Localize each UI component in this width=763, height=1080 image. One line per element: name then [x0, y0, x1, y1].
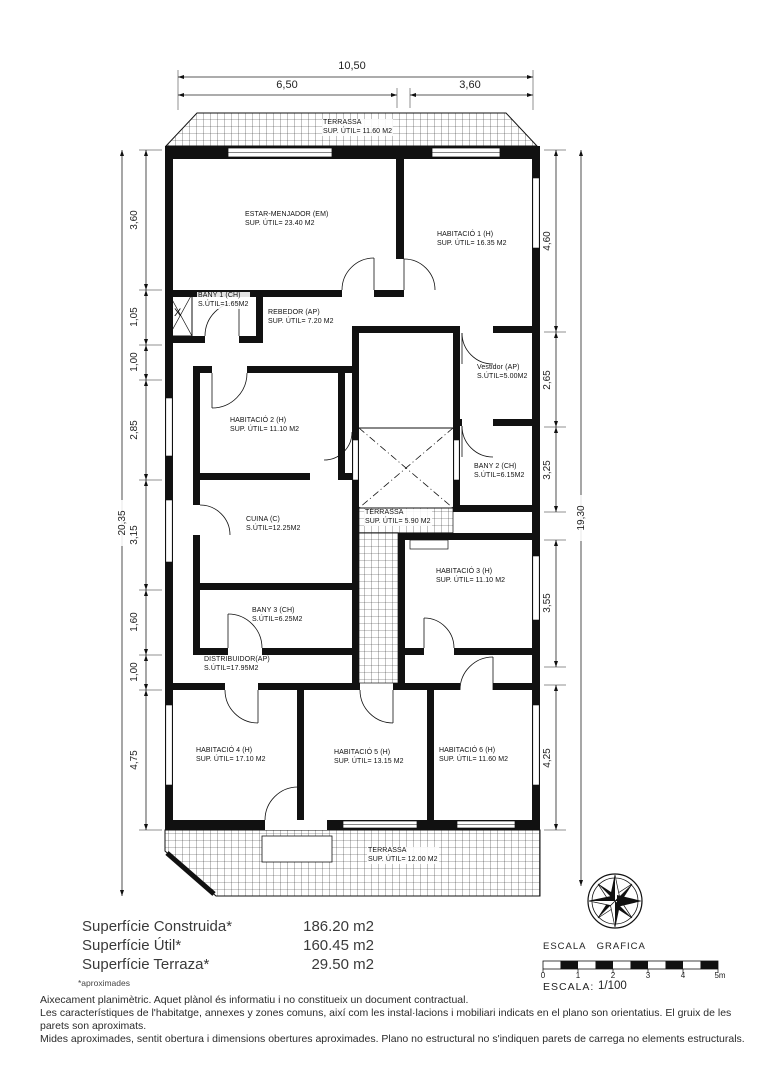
scale-tick-label: 4: [673, 971, 693, 980]
scale-tick-label: 0: [533, 971, 553, 980]
disclaimer-line: Les característiques de l'habitatge, ann…: [40, 1007, 763, 1033]
dim-right-overall: 19,30: [576, 495, 588, 541]
dim-left-seg: 1,00: [129, 650, 141, 694]
dim-right-seg: 4,25: [542, 736, 554, 780]
scale-heading: ESCALA GRAFICA: [543, 941, 646, 952]
room-name: TERRASSA: [365, 509, 431, 518]
dim-right-seg: 2,65: [542, 358, 554, 402]
room-name: ESTAR-MENJADOR (EM): [245, 211, 328, 220]
room-label-hab4: HABITACIÓ 4 (H) SUP. ÚTIL= 17.10 M2: [196, 747, 266, 764]
disclaimer-line: Aixecament planimètric. Aquet plànol és …: [40, 994, 763, 1007]
disclaimer-line: Mides aproximades, sentit obertura i dim…: [40, 1033, 763, 1046]
scale-ratio-label: ESCALA:: [543, 981, 594, 993]
dim-top-left: 6,50: [257, 79, 317, 91]
summary-value: 160.45 m2: [303, 936, 374, 955]
room-name: BANY 3 (CH): [252, 607, 303, 616]
room-label-estar: ESTAR-MENJADOR (EM) SUP. ÚTIL= 23.40 M2: [245, 211, 328, 228]
summary-row: Superfície Construida* 186.20 m2: [82, 917, 374, 936]
room-name: HABITACIÓ 1 (H): [437, 231, 507, 240]
scale-tick-label: 3: [638, 971, 658, 980]
room-label-hab1: HABITACIÓ 1 (H) SUP. ÚTIL= 16.35 M2: [437, 231, 507, 248]
dim-right-seg: 3,55: [542, 581, 554, 625]
summary-note: *aproximades: [78, 978, 130, 988]
room-name: BANY 1 (CH): [198, 292, 249, 301]
room-name: TERRASSA: [368, 847, 438, 856]
summary-row: Superfície Terraza* 29.50 m2: [82, 955, 374, 974]
room-area: SUP. ÚTIL= 16.35 M2: [437, 240, 507, 249]
room-area: SUP. ÚTIL= 11.60 M2: [439, 756, 508, 765]
scale-tick-label: 1: [568, 971, 588, 980]
room-name: HABITACIÓ 2 (H): [230, 417, 299, 426]
room-name: HABITACIÓ 3 (H): [436, 568, 505, 577]
dim-left-seg: 1,00: [129, 340, 141, 384]
room-name: Vestidor (AP): [477, 364, 528, 373]
room-area: S.ÚTIL=6.15M2: [474, 472, 525, 481]
room-area: SUP. ÚTIL= 23.40 M2: [245, 220, 328, 229]
room-label-cuina: CUINA (C) S.ÚTIL=12.25M2: [246, 516, 301, 533]
room-label-rebedor: REBEDOR (AP) SUP. ÚTIL= 7.20 M2: [268, 309, 334, 326]
compass-rose-icon: [588, 874, 642, 928]
room-label-bany2: BANY 2 (CH) S.ÚTIL=6.15M2: [474, 463, 525, 480]
room-area: SUP. ÚTIL= 12.00 M2: [368, 856, 438, 865]
room-label-bany3: BANY 3 (CH) S.ÚTIL=6.25M2: [252, 607, 303, 624]
summary-label: Superfície Terraza*: [82, 955, 209, 974]
dim-left-seg: 1,05: [129, 295, 141, 339]
surface-summary: Superfície Construida* 186.20 m2 Superfí…: [82, 917, 374, 974]
dim-right-seg: 4,60: [542, 219, 554, 263]
dim-right-seg: 3,25: [542, 448, 554, 492]
dim-left-seg: 2,85: [129, 408, 141, 452]
room-name: DISTRIBUIDOR(AP): [204, 656, 270, 665]
summary-label: Superfície Útil*: [82, 936, 181, 955]
room-area: SUP. ÚTIL= 17.10 M2: [196, 756, 266, 765]
room-label-terrassa-top: TERRASSA SUP. ÚTIL= 11.60 M2: [322, 119, 393, 136]
room-name: HABITACIÓ 5 (H): [334, 749, 404, 758]
room-name: REBEDOR (AP): [268, 309, 334, 318]
shaft-x-label: X: [174, 307, 181, 319]
room-name: BANY 2 (CH): [474, 463, 525, 472]
disclaimer: Aixecament planimètric. Aquet plànol és …: [40, 994, 763, 1046]
room-area: S.ÚTIL=6.25M2: [252, 616, 303, 625]
dim-left-seg: 3,15: [129, 513, 141, 557]
summary-row: Superfície Útil* 160.45 m2: [82, 936, 374, 955]
room-area: SUP. ÚTIL= 5.90 M2: [365, 518, 431, 527]
room-area: SUP. ÚTIL= 11.60 M2: [323, 128, 392, 137]
walls: [165, 146, 540, 830]
room-area: SUP. ÚTIL= 11.10 M2: [230, 426, 299, 435]
summary-label: Superfície Construida*: [82, 917, 232, 936]
dim-top-right: 3,60: [440, 79, 500, 91]
room-label-distribuidor: DISTRIBUIDOR(AP) S.ÚTIL=17.95M2: [204, 656, 270, 673]
room-label-hab2: HABITACIÓ 2 (H) SUP. ÚTIL= 11.10 M2: [230, 417, 299, 434]
dim-left-overall: 20,35: [117, 500, 129, 546]
summary-value: 186.20 m2: [303, 917, 374, 936]
dim-left-seg: 4,75: [129, 738, 141, 782]
room-area: S.ÚTIL=1.65M2: [198, 301, 249, 310]
summary-value: 29.50 m2: [311, 955, 374, 974]
room-area: S.ÚTIL=12.25M2: [246, 525, 301, 534]
dim-left-seg: 3,60: [129, 198, 141, 242]
room-name: TERRASSA: [323, 119, 392, 128]
room-area: SUP. ÚTIL= 7.20 M2: [268, 318, 334, 327]
room-area: S.ÚTIL=5.00M2: [477, 373, 528, 382]
scale-tick-label: 5m: [710, 971, 730, 980]
room-area: SUP. ÚTIL= 13.15 M2: [334, 758, 404, 767]
room-area: SUP. ÚTIL= 11.10 M2: [436, 577, 505, 586]
dim-top-overall: 10,50: [322, 60, 382, 72]
room-name: CUINA (C): [246, 516, 301, 525]
room-label-hab3: HABITACIÓ 3 (H) SUP. ÚTIL= 11.10 M2: [436, 568, 505, 585]
room-area: S.ÚTIL=17.95M2: [204, 665, 270, 674]
dim-left-seg: 1,60: [129, 600, 141, 644]
room-name: HABITACIÓ 6 (H): [439, 747, 508, 756]
room-label-hab5: HABITACIÓ 5 (H) SUP. ÚTIL= 13.15 M2: [334, 749, 404, 766]
room-label-vestidor: Vestidor (AP) S.ÚTIL=5.00M2: [477, 364, 528, 381]
scale-ratio-value: 1/100: [598, 980, 627, 992]
room-name: HABITACIÓ 4 (H): [196, 747, 266, 756]
room-label-bany1: BANY 1 (CH) S.ÚTIL=1.65M2: [197, 292, 250, 309]
room-label-terrassa-bot: TERRASSA SUP. ÚTIL= 12.00 M2: [367, 847, 439, 864]
scale-tick-label: 2: [603, 971, 623, 980]
room-label-hab6: HABITACIÓ 6 (H) SUP. ÚTIL= 11.60 M2: [439, 747, 508, 764]
room-label-terrassa-mid: TERRASSA SUP. ÚTIL= 5.90 M2: [364, 509, 432, 526]
dimension-lines: [122, 70, 581, 896]
floorplan-page: TERRASSA SUP. ÚTIL= 11.60 M2 ESTAR-MENJA…: [0, 0, 763, 1080]
